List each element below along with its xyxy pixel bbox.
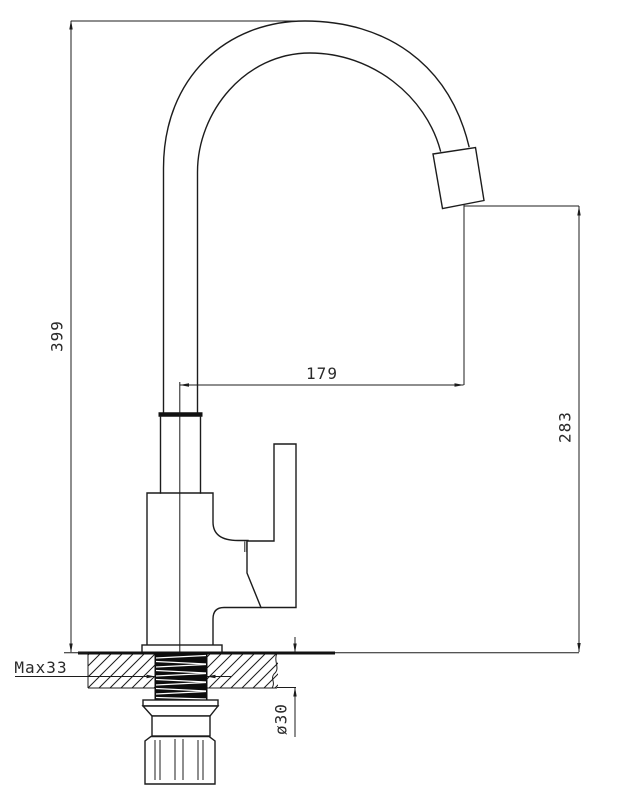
arrowhead-left-icon: [180, 383, 189, 386]
middle-tube: [161, 417, 201, 494]
dim-max33-label: Max33: [14, 658, 67, 677]
arrowhead-down-icon: [69, 644, 72, 654]
aerator: [433, 148, 484, 209]
arrowhead-down-icon: [577, 643, 580, 653]
countertop: [55, 653, 579, 688]
arrowhead-right-icon: [455, 383, 465, 386]
arrowhead-up-icon: [577, 206, 580, 216]
spout-inner-curve: [198, 53, 441, 414]
dim-283-label: 283: [556, 411, 575, 443]
body-outline: [147, 493, 261, 645]
dim-179-label: 179: [306, 364, 338, 383]
faucet-technical-drawing: 399 179 283 Max33 ø30: [0, 0, 619, 798]
lock-nut: [152, 716, 210, 736]
washer: [143, 700, 218, 706]
faucet-outline: [142, 21, 484, 655]
arrowhead-up-icon: [293, 687, 296, 697]
dim-spout-reach: 179: [180, 205, 464, 387]
drawing-canvas: 399 179 283 Max33 ø30: [0, 0, 619, 798]
spout-outer-curve: [164, 21, 470, 414]
countertop-break-line: [272, 653, 277, 688]
mounting-hardware: [143, 654, 218, 785]
dim-o30-label: ø30: [272, 703, 291, 735]
chamfer-collar: [143, 706, 218, 716]
handle-lever: [247, 444, 296, 608]
dim-outlet-height: 283: [464, 206, 581, 653]
arrowhead-right-icon: [147, 675, 156, 678]
dim-399-label: 399: [48, 320, 67, 352]
